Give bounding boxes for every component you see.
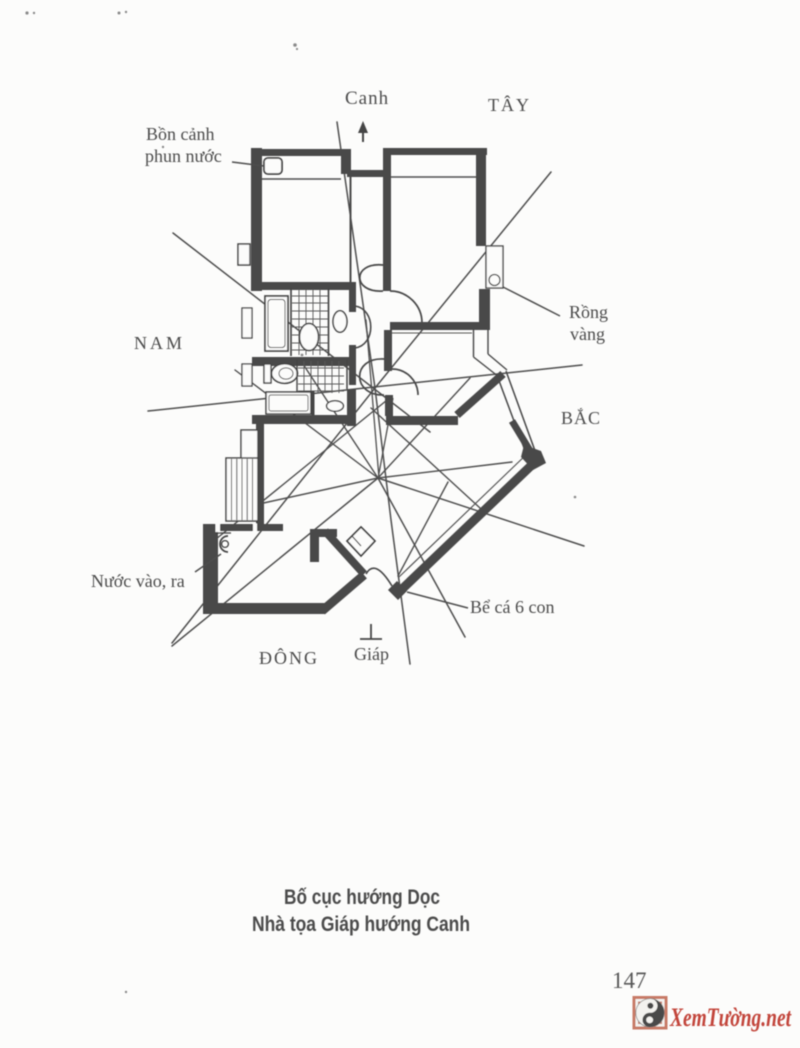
svg-text:Bể cá 6 con: Bể cá 6 con (470, 597, 554, 617)
svg-text:Canh: Canh (345, 88, 389, 109)
svg-text:NAM: NAM (134, 333, 185, 353)
svg-text:BẮC: BẮC (561, 407, 601, 428)
svg-text:Rồng: Rồng (569, 302, 608, 322)
svg-text:Bồn cảnh: Bồn cảnh (146, 124, 214, 144)
svg-text:Bố cục hướng Dọc: Bố cục hướng Dọc (284, 886, 440, 909)
svg-text:Nhà tọa Giáp hướng Canh: Nhà tọa Giáp hướng Canh (252, 913, 470, 936)
svg-text:phun nước: phun nước (145, 146, 222, 166)
svg-text:XemTường.net: XemTường.net (669, 1003, 791, 1032)
svg-text:ĐÔNG: ĐÔNG (259, 647, 319, 668)
svg-text:147: 147 (612, 968, 647, 993)
svg-text:Giáp: Giáp (354, 644, 389, 664)
svg-text:Nước vào, ra: Nước vào, ra (91, 571, 185, 591)
svg-text:vàng: vàng (570, 324, 605, 344)
svg-text:TÂY: TÂY (488, 94, 531, 115)
